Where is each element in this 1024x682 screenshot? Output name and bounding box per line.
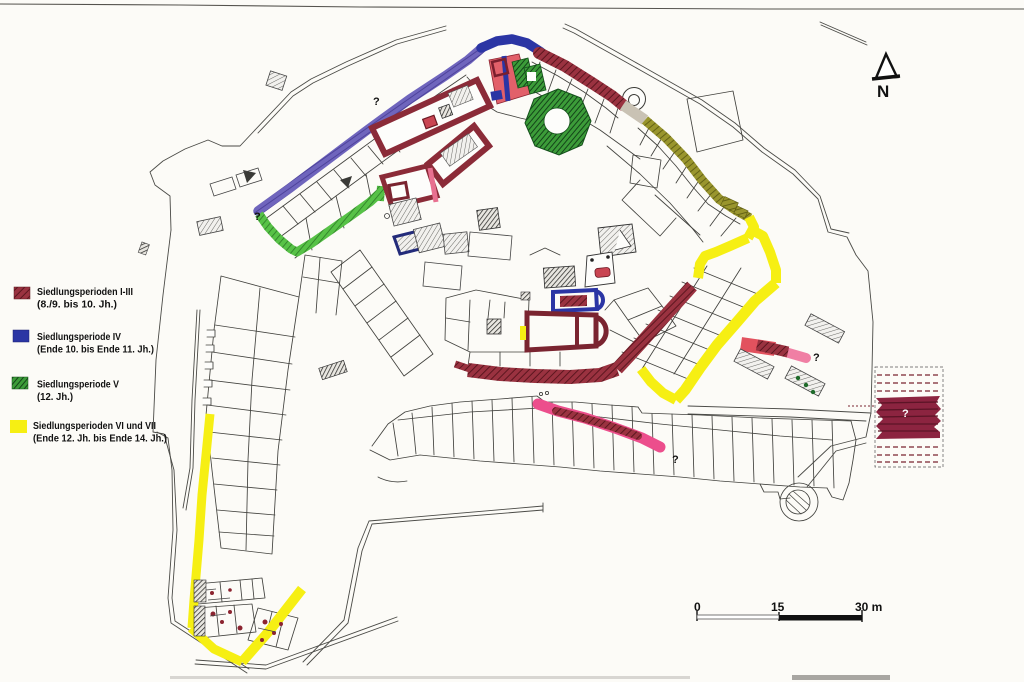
svg-text:Siedlungsperiode V: Siedlungsperiode V [37,380,119,391]
svg-text:?: ? [373,96,380,108]
svg-text:Siedlungsperioden I-III: Siedlungsperioden I-III [37,287,133,298]
svg-text:(Ende 12. Jh. bis Ende 14. Jh.: (Ende 12. Jh. bis Ende 14. Jh.) [33,434,167,445]
svg-text:?: ? [813,352,820,364]
svg-text:(8./9. bis 10. Jh.): (8./9. bis 10. Jh.) [37,300,117,311]
svg-text:Siedlungsperiode IV: Siedlungsperiode IV [37,332,121,343]
svg-text:N: N [877,82,889,101]
svg-text:(Ende 10. bis Ende 11. Jh.): (Ende 10. bis Ende 11. Jh.) [37,345,154,356]
svg-text:?: ? [254,211,261,223]
svg-text:30 m: 30 m [855,600,882,614]
svg-text:Siedlungsperioden VI und VII: Siedlungsperioden VI und VII [33,421,156,432]
svg-text:?: ? [672,454,679,466]
svg-text:15: 15 [771,600,785,614]
svg-text:(12. Jh.): (12. Jh.) [37,392,73,403]
svg-text:?: ? [902,408,909,420]
